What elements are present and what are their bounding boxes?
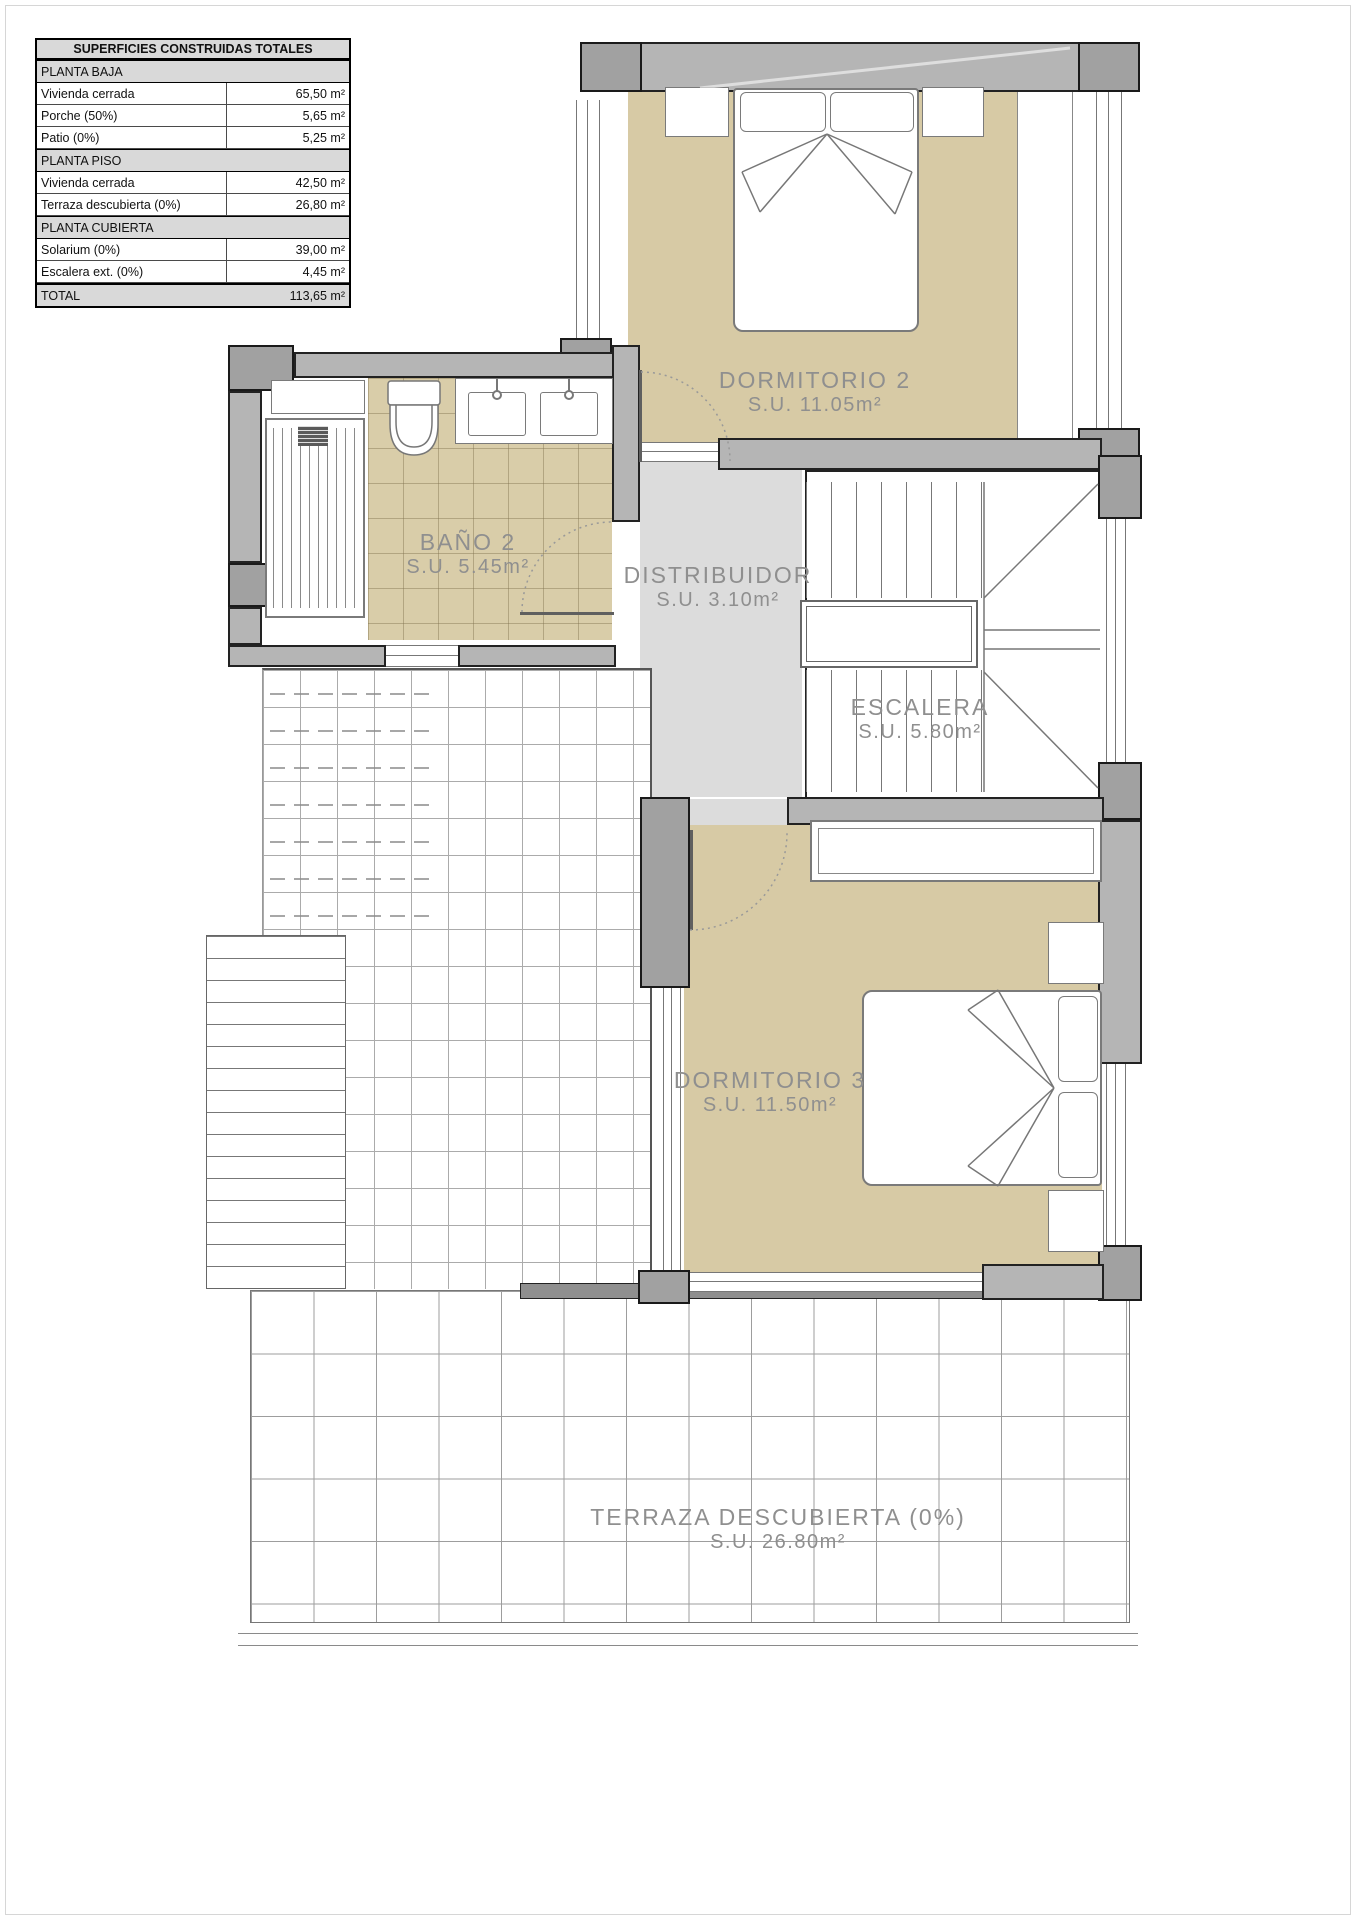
room-area: S.U. 11.05m² [719,394,911,416]
floor-plan-page: SUPERFICIES CONSTRUIDAS TOTALES PLANTA B… [0,0,1356,1920]
bed-fold-lines [968,990,1054,1186]
bed-fold-lines [742,134,912,214]
room-label-distribuidor: DISTRIBUIDOR S.U. 3.10m² [624,563,813,611]
toilet-icon [388,381,440,455]
linework-svg [0,0,1356,1920]
room-area: S.U. 26.80m² [590,1531,966,1553]
room-label-escalera: ESCALERA S.U. 5.80m² [851,695,990,743]
room-area: S.U. 5.80m² [851,721,990,743]
sink-taps [493,378,573,399]
room-name: DISTRIBUIDOR [624,563,813,589]
roof-dashed-lines [270,694,432,916]
room-label-terraza: TERRAZA DESCUBIERTA (0%) S.U. 26.80m² [590,1505,966,1553]
stair-lines [984,482,1100,792]
room-name: TERRAZA DESCUBIERTA (0%) [590,1505,966,1531]
room-area: S.U. 11.50m² [674,1094,866,1116]
room-name: DORMITORIO 2 [719,368,911,394]
wall-hatch-line [700,48,1070,88]
room-label-bano2: BAÑO 2 S.U. 5.45m² [406,530,529,578]
room-name: BAÑO 2 [406,530,529,556]
room-name: ESCALERA [851,695,990,721]
room-label-dormitorio3: DORMITORIO 3 S.U. 11.50m² [674,1068,866,1116]
door-arc [522,372,787,930]
room-label-dormitorio2: DORMITORIO 2 S.U. 11.05m² [719,368,911,416]
room-area: S.U. 5.45m² [406,556,529,578]
room-area: S.U. 3.10m² [624,589,813,611]
room-name: DORMITORIO 3 [674,1068,866,1094]
